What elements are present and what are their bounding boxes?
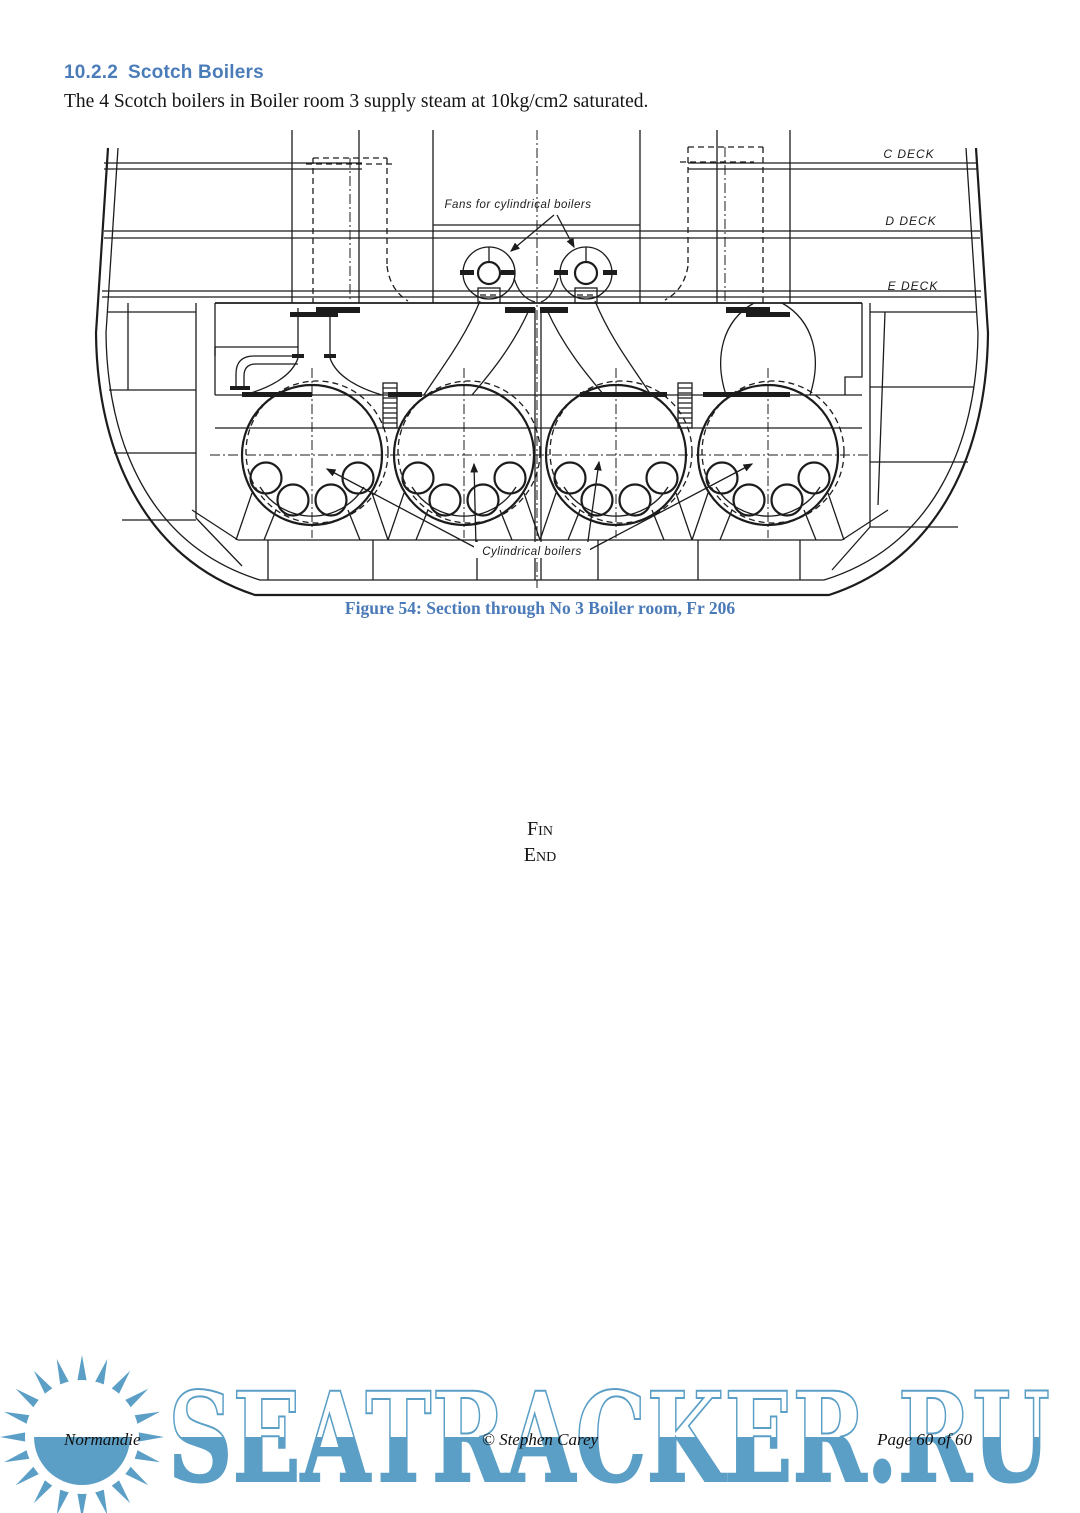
footer-page-number: Page 60 of 60 xyxy=(877,1430,972,1450)
fans-label-arrows xyxy=(511,215,574,251)
hull-outer-shell xyxy=(96,148,988,595)
figure-caption: Figure 54: Section through No 3 Boiler r… xyxy=(0,598,1080,619)
cylindrical-boilers-label: Cylindrical boilers xyxy=(482,546,582,558)
platform-lines xyxy=(210,392,870,455)
boiler-room-section-drawing: C DECK D DECK E DECK xyxy=(92,118,992,600)
fin-text: Fin xyxy=(0,818,1080,841)
body-paragraph: The 4 Scotch boilers in Boiler room 3 su… xyxy=(64,91,648,113)
section-title: Scotch Boilers xyxy=(128,62,264,83)
boiler-uptakes xyxy=(215,301,815,580)
deck-lines xyxy=(102,163,981,303)
end-text: End xyxy=(0,844,1080,867)
boiler-3 xyxy=(540,368,692,540)
deck-e-label: E DECK xyxy=(888,279,939,293)
document-page: 10.2.2Scotch Boilers The 4 Scotch boiler… xyxy=(0,0,1080,1513)
deck-c-label: C DECK xyxy=(883,147,934,161)
section-heading: 10.2.2Scotch Boilers xyxy=(64,62,264,84)
boiler-fans xyxy=(460,247,617,303)
casing-walls xyxy=(292,130,790,303)
section-number: 10.2.2 xyxy=(64,62,118,83)
deck-d-label: D DECK xyxy=(885,214,936,228)
fans-label: Fans for cylindrical boilers xyxy=(445,199,592,211)
hull-inner-shell xyxy=(106,148,978,580)
